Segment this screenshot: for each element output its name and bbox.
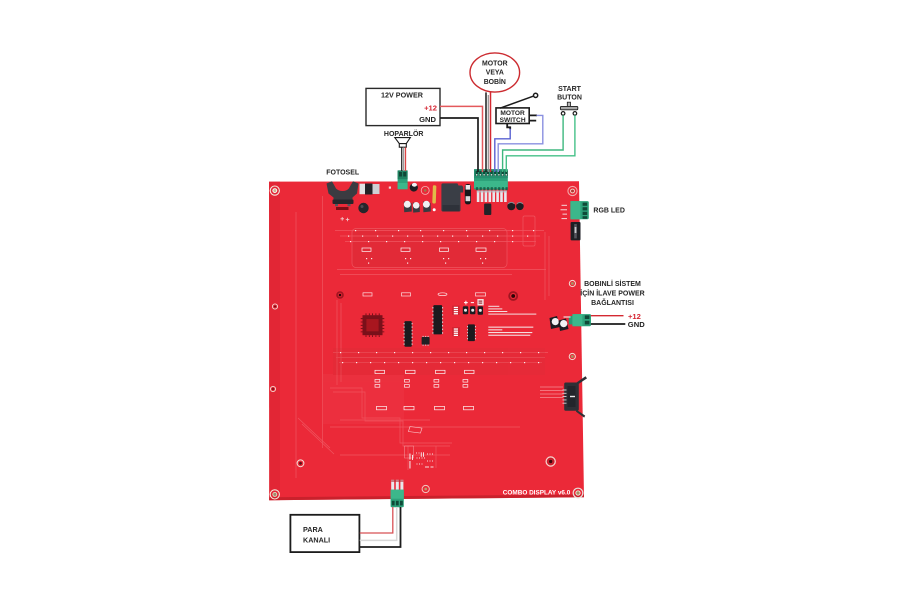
svg-text:BUTON: BUTON [557, 94, 582, 101]
svg-text:GND: GND [628, 320, 645, 329]
svg-text:RGB LED: RGB LED [593, 207, 625, 214]
svg-text:HOPARLÖR: HOPARLÖR [384, 129, 424, 138]
svg-text:BAĞLANTISI: BAĞLANTISI [591, 298, 634, 307]
svg-text:VEYA: VEYA [486, 70, 504, 77]
svg-text:BOBINLİ SİSTEM: BOBINLİ SİSTEM [584, 280, 641, 288]
svg-text:START: START [558, 86, 582, 93]
svg-text:MOTOR: MOTOR [500, 110, 525, 117]
svg-text:GND: GND [419, 115, 436, 124]
svg-text:FOTOSEL: FOTOSEL [326, 169, 360, 176]
svg-text:PARA: PARA [303, 525, 323, 534]
svg-text:SWITCH: SWITCH [500, 117, 526, 124]
svg-text:12V POWER: 12V POWER [381, 91, 424, 100]
svg-text:İÇİN İLAVE POWER: İÇİN İLAVE POWER [580, 289, 644, 297]
svg-text:+12: +12 [424, 104, 437, 113]
svg-text:MOTOR: MOTOR [482, 61, 508, 68]
svg-text:COMBO DISPLAY v6.0: COMBO DISPLAY v6.0 [503, 490, 571, 497]
svg-text:KANALI: KANALI [303, 536, 330, 545]
svg-text:BOBİN: BOBİN [484, 77, 506, 86]
